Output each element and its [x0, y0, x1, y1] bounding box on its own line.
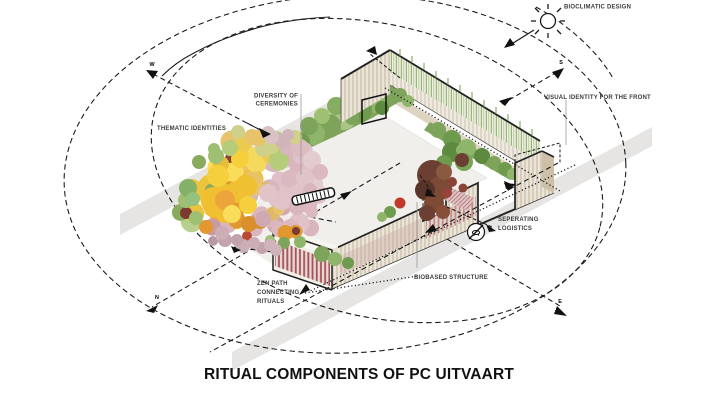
svg-text:E: E	[558, 299, 562, 305]
svg-text:CONNECTING: CONNECTING	[257, 290, 299, 296]
svg-text:BIOBASED STRUCTURE: BIOBASED STRUCTURE	[414, 275, 488, 281]
svg-text:RITUAL COMPONENTS OF PC UITVAA: RITUAL COMPONENTS OF PC UITVAART	[204, 366, 514, 383]
svg-text:THEMATIC IDENTITIES: THEMATIC IDENTITIES	[157, 126, 226, 132]
svg-text:RITUALS: RITUALS	[257, 299, 284, 305]
svg-text:SEPERATING: SEPERATING	[498, 217, 539, 223]
svg-text:N: N	[155, 295, 159, 301]
svg-text:S: S	[559, 60, 563, 66]
svg-text:ZEN PATH: ZEN PATH	[257, 281, 288, 287]
svg-text:CEREMONIES: CEREMONIES	[256, 102, 298, 108]
svg-text:BIOCLIMATIC DESIGN: BIOCLIMATIC DESIGN	[564, 5, 631, 11]
svg-text:W: W	[149, 62, 155, 68]
svg-text:LOGISTICS: LOGISTICS	[498, 226, 532, 232]
svg-text:VISUAL IDENTITY FOR THE FRONT: VISUAL IDENTITY FOR THE FRONT	[544, 95, 651, 101]
svg-text:DIVERSITY OF: DIVERSITY OF	[254, 94, 298, 100]
